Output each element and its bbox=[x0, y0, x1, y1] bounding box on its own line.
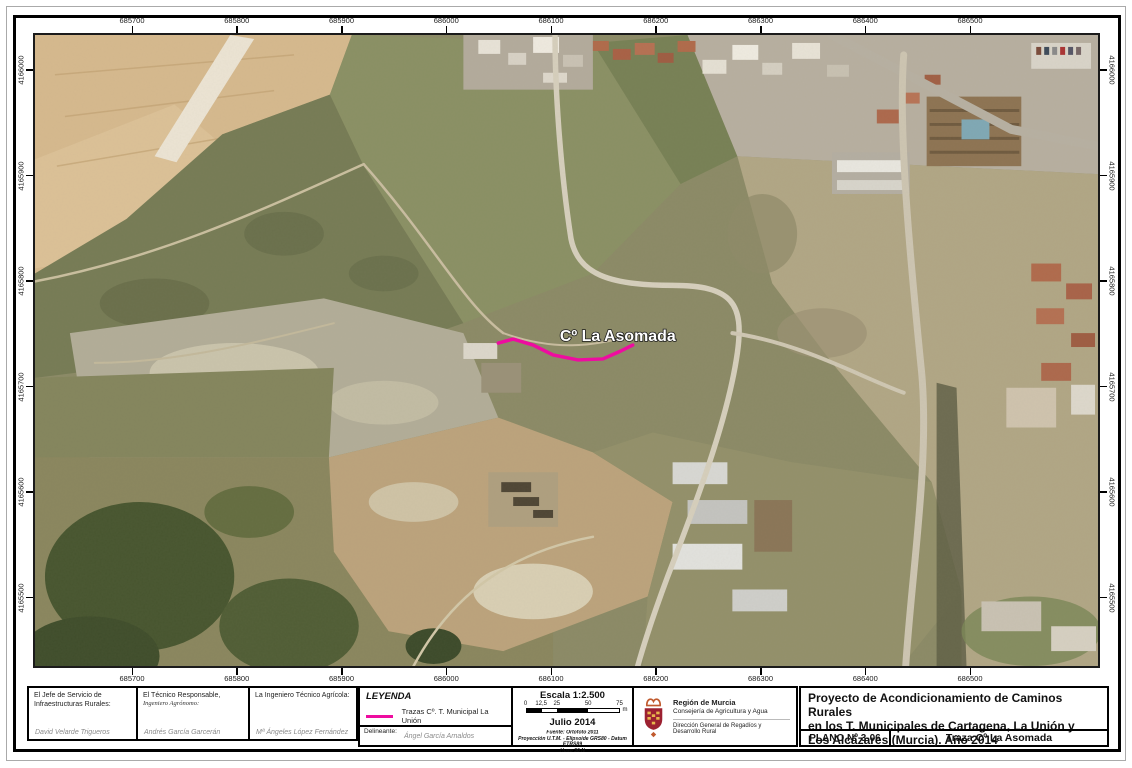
grid-coordinate-top: 685700 bbox=[119, 16, 144, 25]
grid-tick-left bbox=[26, 386, 33, 388]
scale-tick: 0 bbox=[524, 701, 527, 707]
delineante-name: Ángel García Arnaldos bbox=[404, 733, 474, 740]
scale-bar-ticks: 0 12,5 25 50 75 bbox=[526, 701, 620, 708]
legend-item-label: Trazas Cº. T. Municipal La Unión bbox=[402, 707, 505, 725]
grid-coordinate-bottom: 686300 bbox=[748, 674, 773, 683]
grid-coordinate-bottom: 685800 bbox=[224, 674, 249, 683]
legend-body: LEYENDA Trazas Cº. T. Municipal La Unión bbox=[360, 688, 511, 725]
scale-box: Escala 1:2.500 0 12,5 25 50 75 m Julio 2… bbox=[511, 686, 634, 747]
grid-tick-top bbox=[655, 26, 657, 33]
grid-tick-top bbox=[970, 26, 972, 33]
agency-region: Región de Murcia bbox=[673, 698, 790, 707]
grid-tick-left bbox=[26, 491, 33, 493]
signature-name: Mª Ángeles López Fernández bbox=[256, 729, 348, 736]
grid-tick-top bbox=[341, 26, 343, 33]
grid-tick-bottom bbox=[236, 668, 238, 675]
grid-tick-top bbox=[132, 26, 134, 33]
grid-coordinate-right: 4165600 bbox=[1108, 477, 1117, 506]
photo-grain bbox=[35, 35, 1098, 666]
signature-box-ingeniero: La Ingeniero Técnico Agrícola: Mª Ángele… bbox=[248, 686, 358, 741]
grid-tick-left bbox=[26, 597, 33, 599]
grid-coordinate-bottom: 686200 bbox=[643, 674, 668, 683]
scale-tick: 12,5 bbox=[535, 701, 547, 707]
grid-tick-right bbox=[1100, 597, 1107, 599]
grid-tick-bottom bbox=[341, 668, 343, 675]
scale-tick: 25 bbox=[553, 701, 560, 707]
agency-box: Región de Murcia Consejería de Agricultu… bbox=[632, 686, 798, 747]
grid-coordinate-right: 4165700 bbox=[1108, 372, 1117, 401]
project-title-line1: Proyecto de Acondicionamiento de Caminos… bbox=[808, 691, 1100, 719]
agency-department: Consejería de Agricultura y Agua bbox=[673, 708, 790, 715]
grid-coordinate-right: 4165500 bbox=[1108, 583, 1117, 612]
grid-coordinate-left: 4165800 bbox=[17, 266, 26, 295]
signature-box-tecnico: El Técnico Responsable, Ingeniero Agróno… bbox=[136, 686, 250, 741]
grid-tick-bottom bbox=[865, 668, 867, 675]
grid-tick-bottom bbox=[551, 668, 553, 675]
legend-title: LEYENDA bbox=[366, 691, 505, 702]
grid-tick-right bbox=[1100, 175, 1107, 177]
grid-coordinate-top: 686200 bbox=[643, 16, 668, 25]
delineante-label: Delineante: bbox=[364, 728, 397, 735]
grid-coordinate-right: 4165800 bbox=[1108, 266, 1117, 295]
grid-coordinate-left: 4166000 bbox=[17, 55, 26, 84]
grid-coordinate-right: 4165900 bbox=[1108, 161, 1117, 190]
agency-directorate: Dirección General de Regadíos y Desarrol… bbox=[673, 719, 790, 735]
grid-tick-bottom bbox=[970, 668, 972, 675]
grid-coordinate-bottom: 685900 bbox=[329, 674, 354, 683]
grid-coordinate-top: 685900 bbox=[329, 16, 354, 25]
grid-tick-top bbox=[446, 26, 448, 33]
grid-tick-left bbox=[26, 175, 33, 177]
delineante-cell: Delineante: Ángel García Arnaldos bbox=[360, 725, 511, 743]
grid-coordinate-top: 686300 bbox=[748, 16, 773, 25]
grid-coordinate-top: 686000 bbox=[434, 16, 459, 25]
grid-coordinate-bottom: 685700 bbox=[119, 674, 144, 683]
grid-coordinate-bottom: 686100 bbox=[538, 674, 563, 683]
grid-tick-bottom bbox=[655, 668, 657, 675]
grid-coordinate-left: 4165500 bbox=[17, 583, 26, 612]
grid-coordinate-left: 4165600 bbox=[17, 477, 26, 506]
grid-tick-right bbox=[1100, 69, 1107, 71]
grid-coordinate-top: 686400 bbox=[853, 16, 878, 25]
grid-tick-top bbox=[865, 26, 867, 33]
legend-box: LEYENDA Trazas Cº. T. Municipal La Unión… bbox=[358, 686, 513, 747]
plan-sheet: Cº La Asomada 68570068570068580068580068… bbox=[0, 0, 1132, 768]
trace-color-swatch bbox=[366, 715, 393, 718]
grid-coordinate-left: 4165900 bbox=[17, 161, 26, 190]
plan-date: Julio 2014 bbox=[513, 717, 632, 728]
scale-projection: Proyección U.T.M. - Elipsoide GRS80 - Da… bbox=[518, 736, 627, 748]
grid-tick-right bbox=[1100, 491, 1107, 493]
signature-title: La Ingeniero Técnico Agrícola: bbox=[250, 688, 356, 700]
grid-coordinate-top: 686100 bbox=[538, 16, 563, 25]
grid-coordinate-right: 4166000 bbox=[1108, 55, 1117, 84]
road-label: Cº La Asomada bbox=[560, 328, 676, 345]
grid-tick-right bbox=[1100, 386, 1107, 388]
scale-tick: 50 bbox=[585, 701, 592, 707]
plano-number: PLANO Nº 3-06 bbox=[801, 731, 891, 745]
grid-tick-bottom bbox=[132, 668, 134, 675]
grid-tick-bottom bbox=[446, 668, 448, 675]
scale-source-notes: Fuente: Ortofoto 2011 Proyección U.T.M. … bbox=[518, 730, 627, 754]
plano-title: Traza Cº La Asomada bbox=[891, 731, 1107, 745]
scale-bar-segments: m bbox=[526, 708, 620, 713]
grid-coordinate-top: 686500 bbox=[957, 16, 982, 25]
scale-zone: Huso 30 N bbox=[518, 748, 627, 754]
grid-tick-top bbox=[236, 26, 238, 33]
grid-tick-right bbox=[1100, 280, 1107, 282]
murcia-shield-icon bbox=[640, 693, 667, 741]
grid-tick-left bbox=[26, 69, 33, 71]
scale-title: Escala 1:2.500 bbox=[513, 690, 632, 701]
aerial-photo-frame: Cº La Asomada bbox=[33, 33, 1100, 668]
aerial-photo: Cº La Asomada bbox=[35, 35, 1098, 666]
title-block: Proyecto de Acondicionamiento de Caminos… bbox=[799, 686, 1109, 747]
grid-coordinate-bottom: 686000 bbox=[434, 674, 459, 683]
signature-subtitle: Ingeniero Agrónomo: bbox=[138, 700, 248, 707]
signature-name: Andrés García Garcerán bbox=[144, 729, 220, 736]
grid-coordinate-bottom: 686500 bbox=[957, 674, 982, 683]
grid-tick-top bbox=[551, 26, 553, 33]
signature-name: David Velarde Trigueros bbox=[35, 729, 110, 736]
grid-coordinate-top: 685800 bbox=[224, 16, 249, 25]
signature-box-jefe: El Jefe de Servicio de Infraestructuras … bbox=[27, 686, 138, 741]
grid-tick-bottom bbox=[760, 668, 762, 675]
scale-bar: 0 12,5 25 50 75 m bbox=[526, 701, 620, 715]
grid-tick-top bbox=[760, 26, 762, 33]
scale-unit: m bbox=[623, 707, 628, 713]
signature-title: El Jefe de Servicio de Infraestructuras … bbox=[29, 688, 136, 709]
signature-title: El Técnico Responsable, bbox=[138, 688, 248, 700]
grid-coordinate-left: 4165700 bbox=[17, 372, 26, 401]
grid-tick-left bbox=[26, 280, 33, 282]
grid-coordinate-bottom: 686400 bbox=[853, 674, 878, 683]
